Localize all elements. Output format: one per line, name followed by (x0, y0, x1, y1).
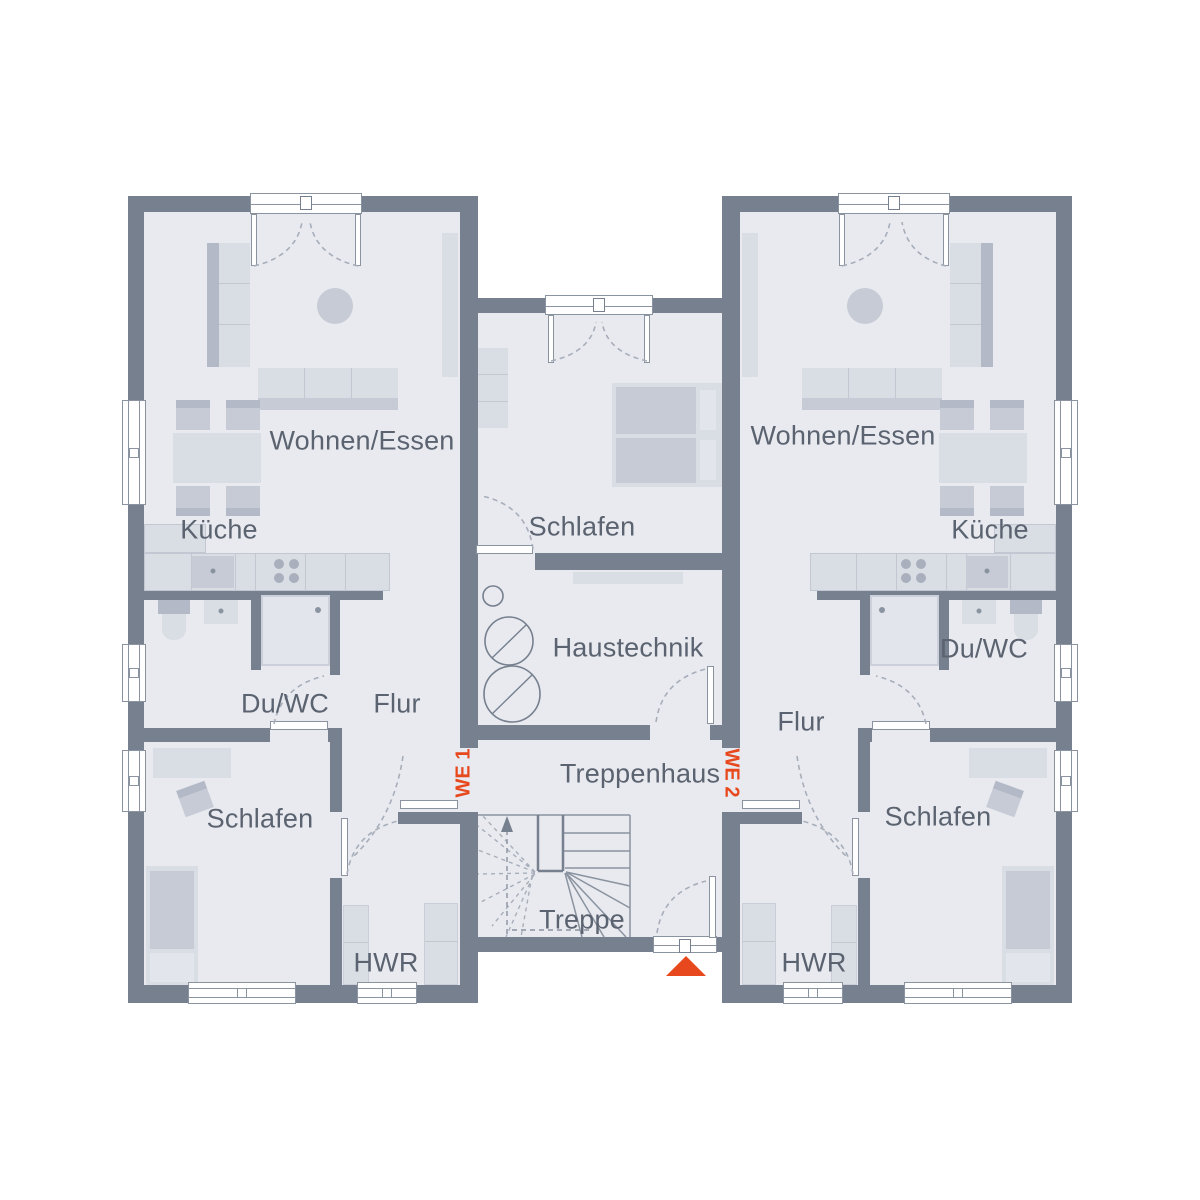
room-label-kueche-we1: Küche (180, 517, 258, 544)
floor-plan: Wohnen/Essen Küche Du/WC Flur Schlafen H… (0, 0, 1200, 1200)
room-label-schlafen-we1: Schlafen (207, 806, 314, 833)
fixture-dots (211, 569, 990, 614)
door-swing-arcs (254, 222, 946, 933)
room-label-flur-we1: Flur (373, 691, 420, 718)
entrance-marker-triangle (666, 956, 706, 976)
room-label-wohnen-essen-we2: Wohnen/Essen (750, 423, 935, 450)
haustechnik-tanks (483, 586, 540, 722)
unit-tag-we1: WE 1 (453, 749, 476, 798)
unit-tag-we2: WE 2 (720, 749, 743, 798)
room-label-treppenhaus: Treppenhaus (560, 761, 720, 788)
stair-direction-arrow (501, 816, 513, 832)
plan-linework (0, 0, 1200, 1200)
room-label-schlafen-core: Schlafen (529, 514, 636, 541)
room-label-treppe: Treppe (539, 907, 625, 934)
room-label-schlafen-we2: Schlafen (885, 804, 992, 831)
room-label-duwc-we1: Du/WC (241, 691, 329, 718)
room-label-haustechnik: Haustechnik (553, 635, 704, 662)
room-label-hwr-we2: HWR (781, 950, 846, 977)
room-label-duwc-we2: Du/WC (940, 636, 1028, 663)
room-label-hwr-we1: HWR (353, 950, 418, 977)
room-label-flur-we2: Flur (777, 709, 824, 736)
stove-burners (274, 559, 926, 583)
room-label-wohnen-essen-we1: Wohnen/Essen (269, 428, 454, 455)
room-label-kueche-we2: Küche (951, 517, 1029, 544)
